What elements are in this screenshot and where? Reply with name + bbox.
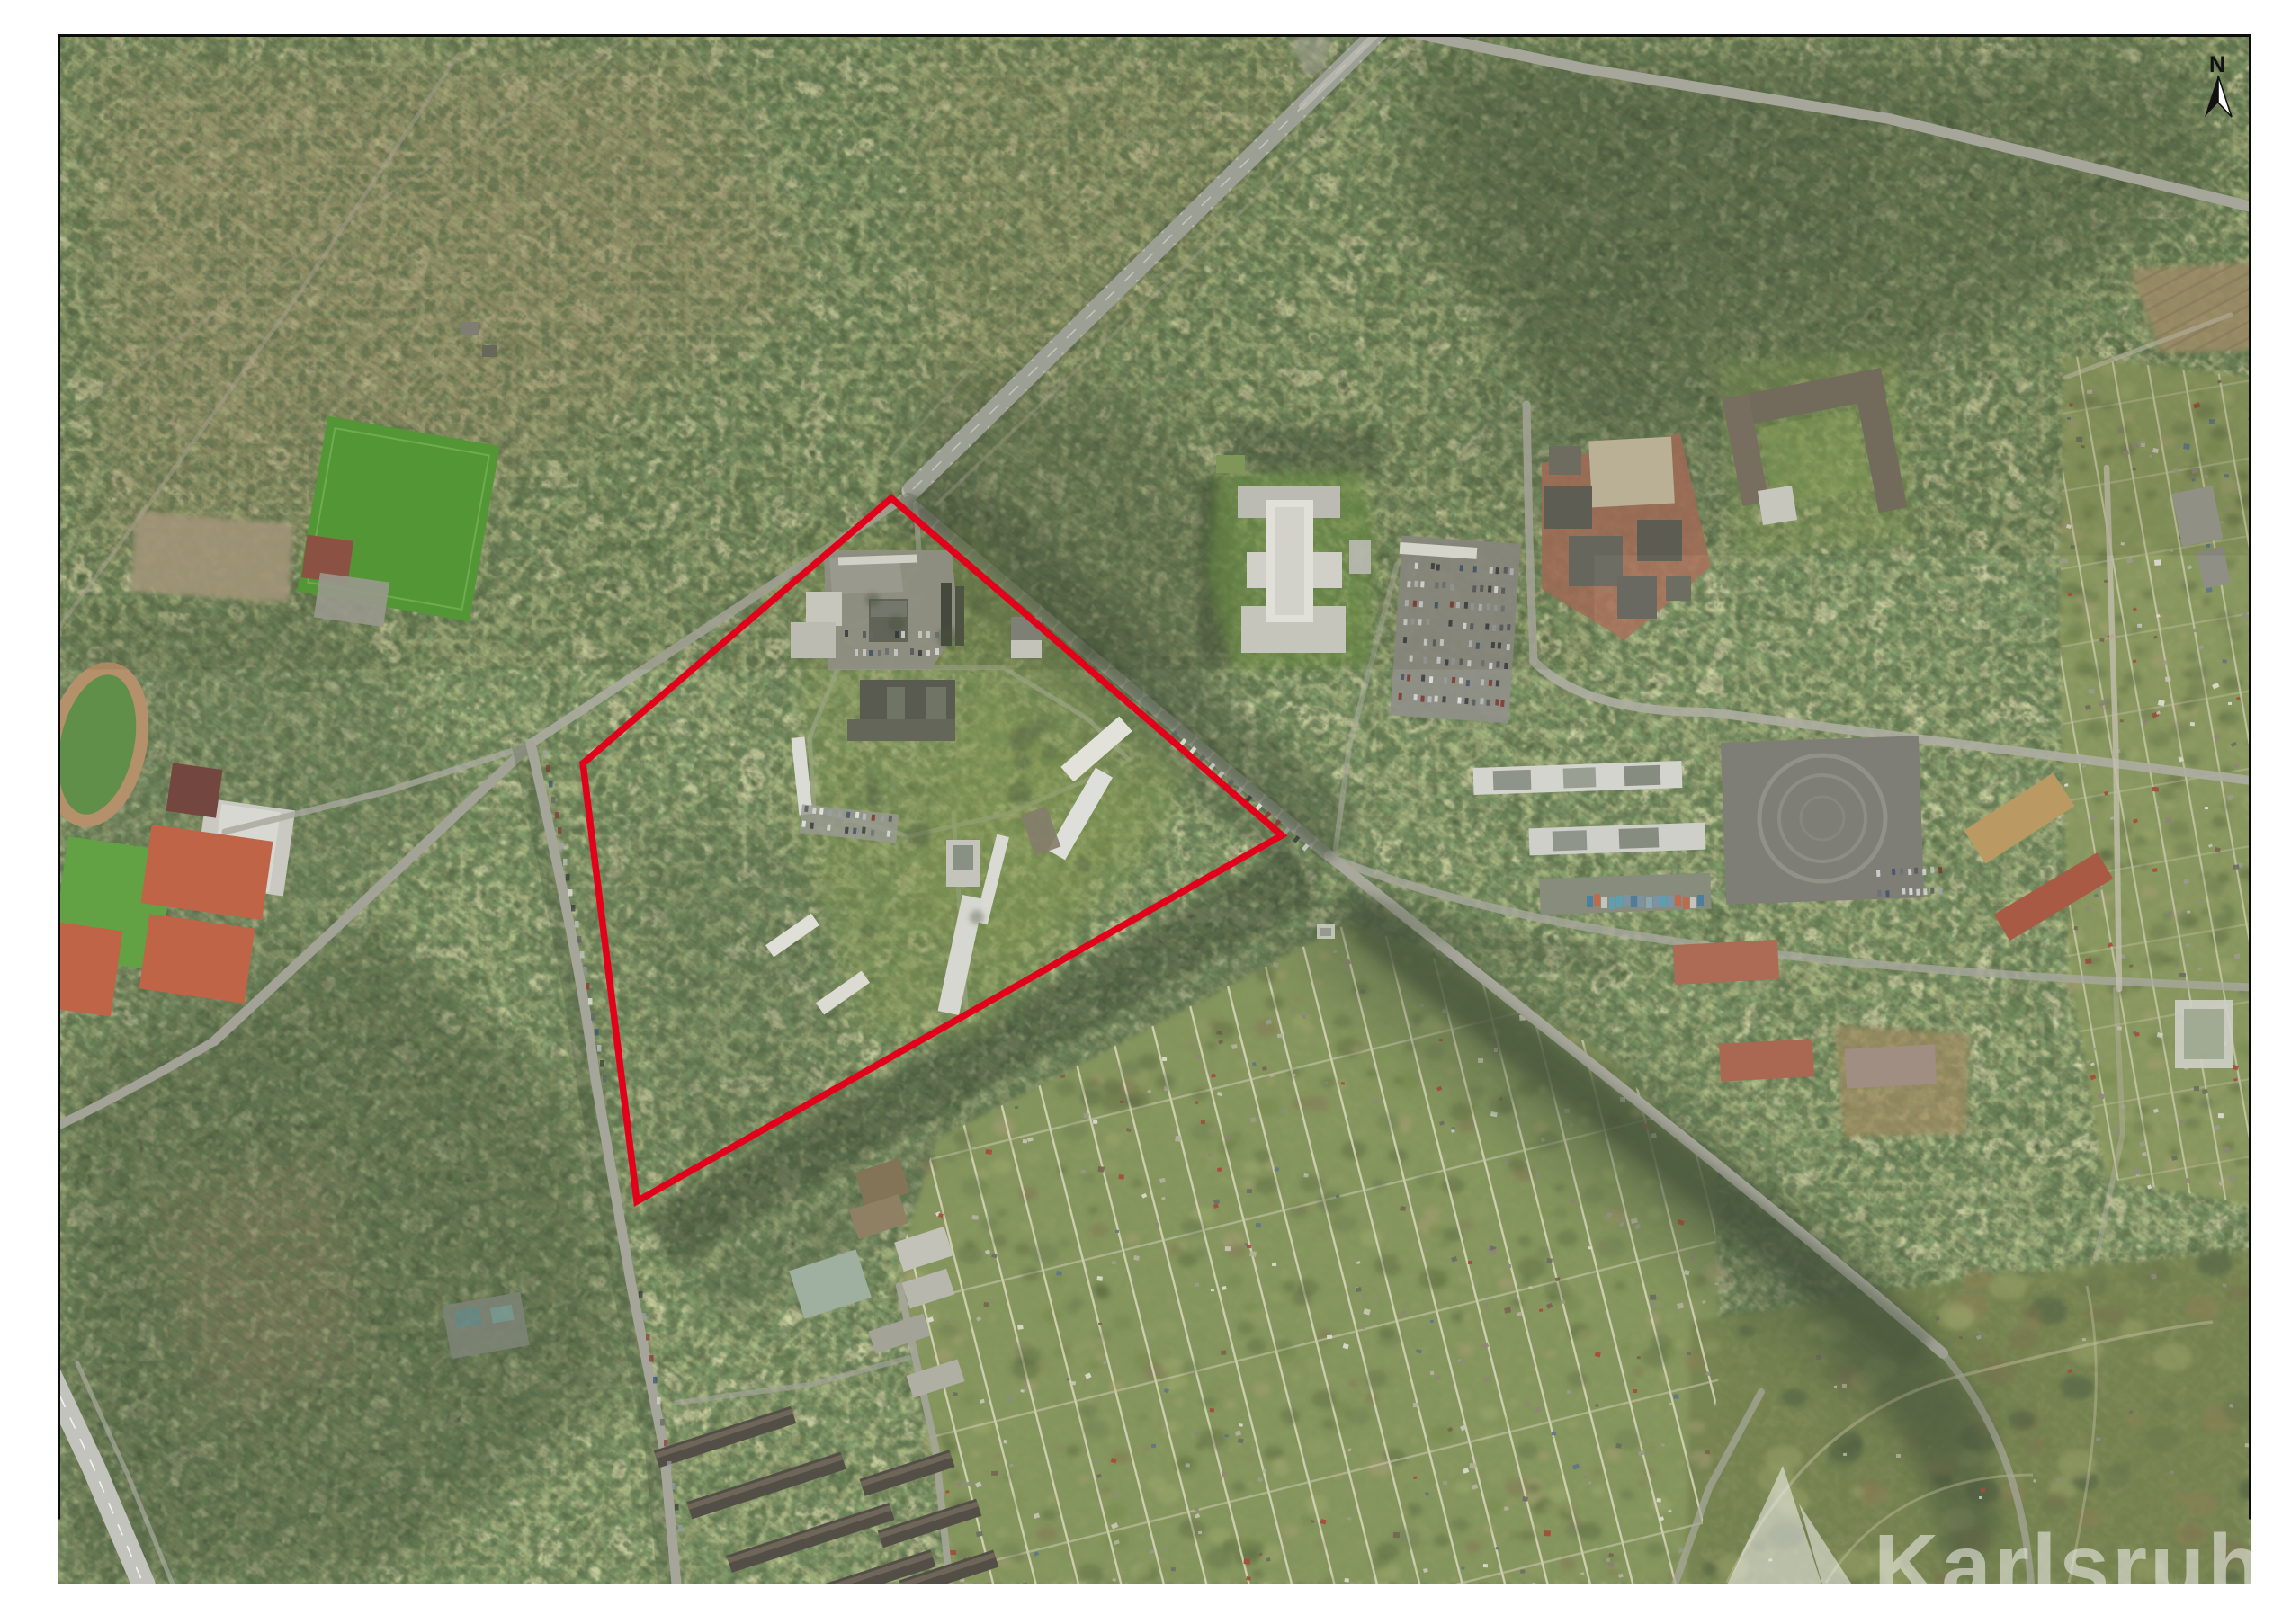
svg-text:N: N — [2209, 52, 2225, 77]
